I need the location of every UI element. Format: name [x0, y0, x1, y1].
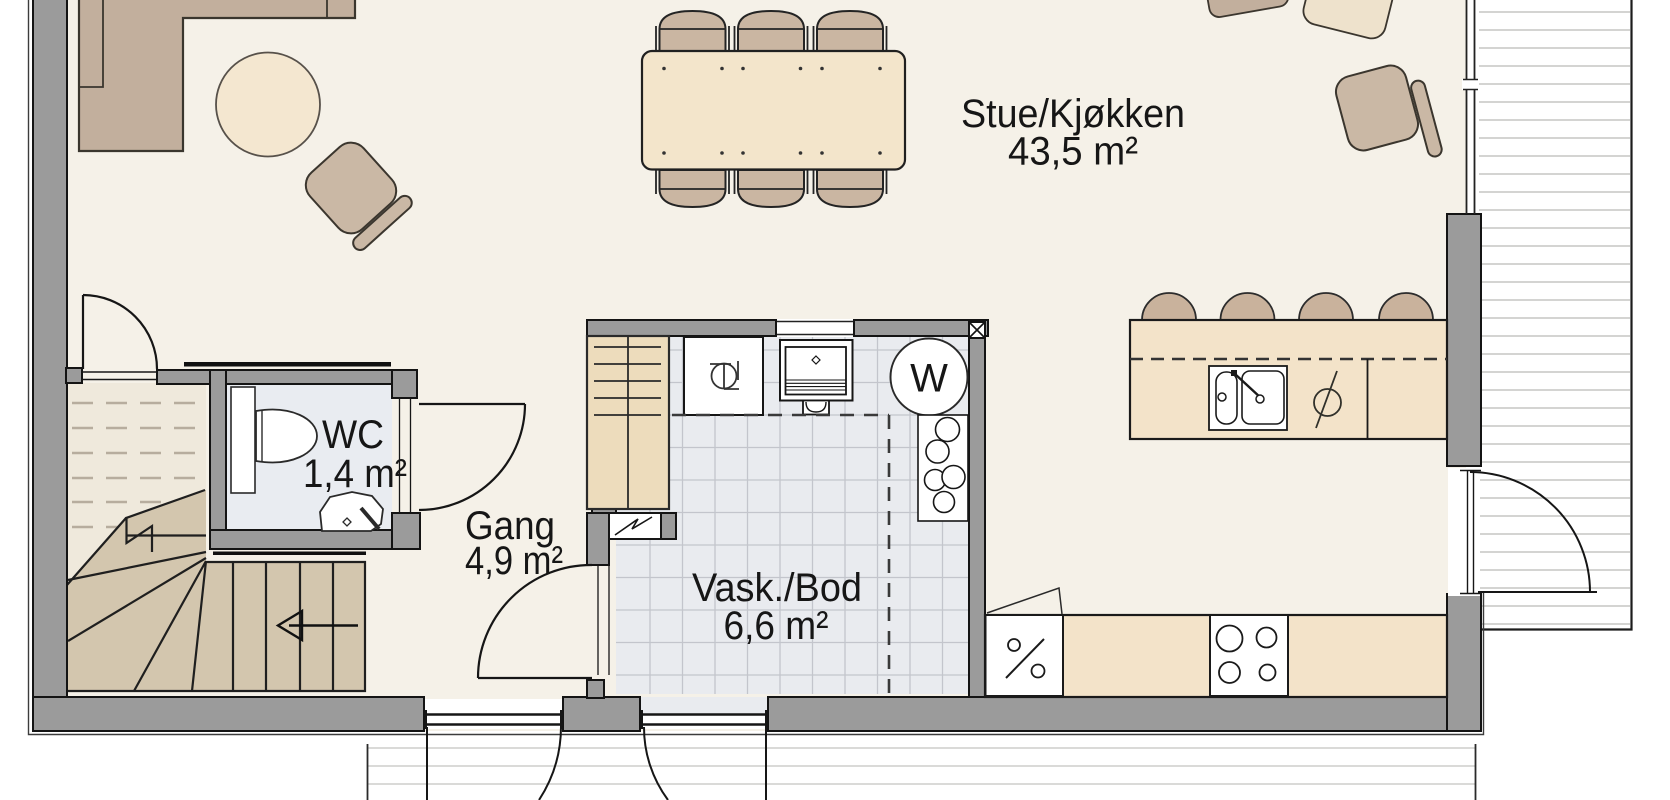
svg-text:43,5 m²: 43,5 m²: [1008, 130, 1138, 174]
svg-text:1,4 m²: 1,4 m²: [303, 452, 407, 496]
svg-text:6,6 m²: 6,6 m²: [724, 604, 829, 648]
svg-text:4,9 m²: 4,9 m²: [465, 539, 563, 583]
svg-text:WC: WC: [322, 413, 384, 457]
svg-text:W: W: [910, 357, 948, 401]
